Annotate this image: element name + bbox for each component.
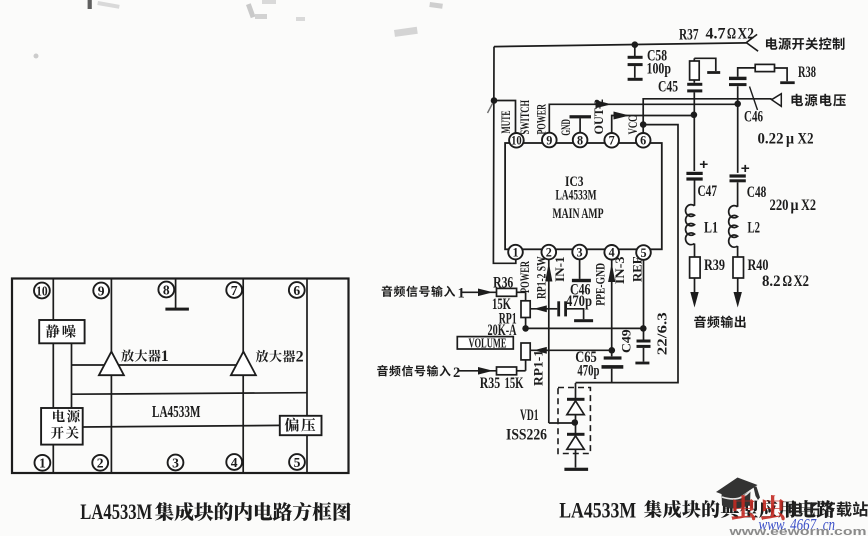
svg-text:C48: C48 bbox=[747, 184, 767, 201]
svg-text:6: 6 bbox=[293, 283, 300, 298]
svg-text:C49: C49 bbox=[619, 329, 633, 353]
svg-text:VOLUME: VOLUME bbox=[469, 335, 507, 350]
svg-text:μ: μ bbox=[786, 131, 794, 148]
svg-text:POWER: POWER bbox=[535, 104, 549, 135]
svg-text:L1: L1 bbox=[704, 220, 718, 237]
svg-text:OUT-2: OUT-2 bbox=[592, 99, 606, 135]
svg-text:MUTE: MUTE bbox=[499, 111, 513, 134]
svg-text:8: 8 bbox=[577, 133, 583, 147]
svg-text:1: 1 bbox=[458, 286, 465, 302]
svg-text:POWER: POWER bbox=[518, 261, 532, 293]
svg-text:+: + bbox=[699, 157, 708, 172]
svg-text:REF: REF bbox=[630, 256, 644, 282]
svg-text:X2: X2 bbox=[801, 197, 816, 214]
svg-text:Ω: Ω bbox=[727, 26, 736, 43]
svg-text:C46: C46 bbox=[744, 109, 763, 126]
svg-text:R37: R37 bbox=[679, 27, 699, 44]
svg-text:LA4533M: LA4533M bbox=[152, 402, 201, 421]
svg-text:2: 2 bbox=[453, 365, 460, 381]
svg-text:0.22: 0.22 bbox=[758, 131, 784, 148]
svg-text:8: 8 bbox=[163, 282, 170, 297]
svg-text:220: 220 bbox=[770, 197, 789, 214]
svg-text:LA4533M: LA4533M bbox=[80, 499, 152, 524]
svg-text:100p: 100p bbox=[647, 60, 672, 77]
svg-text:22/6.3: 22/6.3 bbox=[655, 312, 670, 355]
svg-text:2: 2 bbox=[296, 349, 304, 366]
svg-text:3: 3 bbox=[577, 245, 583, 259]
svg-text:7: 7 bbox=[231, 283, 238, 298]
svg-text:LA4533M: LA4533M bbox=[559, 497, 636, 522]
svg-text:RP1-1: RP1-1 bbox=[531, 350, 545, 386]
svg-text:1: 1 bbox=[161, 348, 169, 365]
svg-text:X2: X2 bbox=[794, 273, 810, 290]
svg-text:GND: GND bbox=[559, 119, 573, 136]
svg-text:PPE-GND: PPE-GND bbox=[593, 263, 607, 306]
svg-text:www.eeworm.com: www.eeworm.com bbox=[728, 526, 866, 536]
svg-text:LA4533M: LA4533M bbox=[556, 188, 597, 204]
svg-text:R39: R39 bbox=[704, 257, 725, 274]
svg-text:5: 5 bbox=[294, 455, 301, 470]
svg-text:4.7: 4.7 bbox=[706, 26, 726, 43]
svg-text:IN-1: IN-1 bbox=[553, 256, 567, 282]
svg-text:μ: μ bbox=[791, 197, 799, 214]
svg-text:1: 1 bbox=[39, 456, 46, 471]
svg-text:15K: 15K bbox=[505, 375, 524, 392]
svg-text:9: 9 bbox=[98, 283, 105, 298]
svg-text:Ω: Ω bbox=[783, 273, 793, 290]
svg-text:8.2: 8.2 bbox=[762, 273, 781, 290]
svg-text:L2: L2 bbox=[748, 220, 761, 237]
svg-text:7: 7 bbox=[609, 134, 615, 148]
svg-text:R38: R38 bbox=[798, 64, 816, 81]
svg-text:6: 6 bbox=[640, 134, 646, 148]
svg-text:2: 2 bbox=[97, 456, 104, 471]
svg-text:R40: R40 bbox=[748, 257, 769, 274]
svg-text:10: 10 bbox=[36, 283, 48, 298]
svg-text:10: 10 bbox=[511, 134, 522, 148]
svg-text:SWITCH: SWITCH bbox=[518, 100, 532, 135]
svg-text:MAIN AMP: MAIN AMP bbox=[553, 206, 604, 222]
svg-text:3: 3 bbox=[172, 455, 179, 470]
svg-text:470p: 470p bbox=[577, 362, 599, 379]
svg-text:1: 1 bbox=[512, 245, 518, 259]
svg-text:X2: X2 bbox=[798, 131, 814, 148]
svg-text:ISS226: ISS226 bbox=[506, 427, 547, 444]
svg-text:C45: C45 bbox=[658, 79, 678, 96]
svg-text:470p: 470p bbox=[566, 293, 592, 310]
svg-text:R36: R36 bbox=[493, 275, 513, 292]
svg-text:C47: C47 bbox=[698, 183, 718, 200]
svg-text:+: + bbox=[741, 161, 750, 176]
svg-text:VCC: VCC bbox=[626, 116, 640, 135]
svg-text:X2: X2 bbox=[738, 26, 755, 43]
svg-text:R35: R35 bbox=[480, 375, 501, 392]
svg-text:VD1: VD1 bbox=[520, 407, 539, 424]
svg-text:4: 4 bbox=[231, 455, 238, 470]
